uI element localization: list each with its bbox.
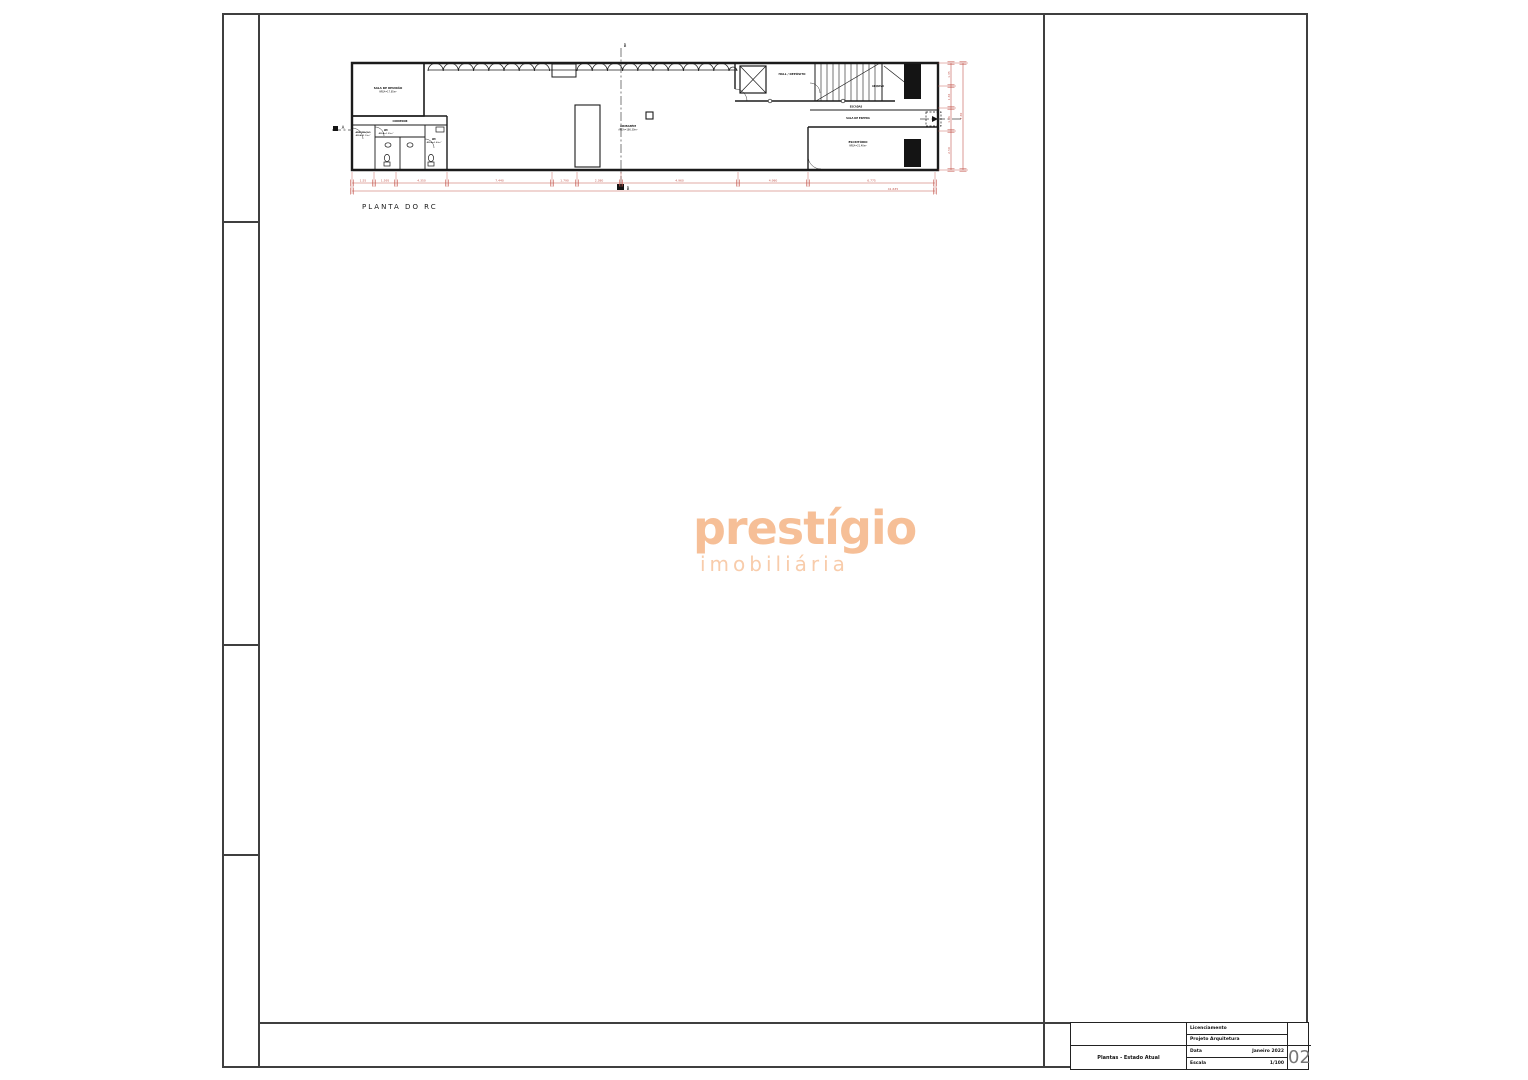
room-label: ÁREA=17.85m² [379, 91, 397, 94]
dim-value: 6.775 [867, 179, 876, 183]
dim-value: 1.36 [947, 116, 951, 123]
room-label: HALL / DEPÓSITO [778, 71, 806, 76]
watermark-brand-name: prestígio [693, 505, 863, 551]
drawing-title: Plantas - Estado Atual [1071, 1046, 1187, 1069]
binding-tick-3 [222, 854, 260, 856]
room-label: ARRUMAÇÃO [355, 131, 370, 134]
sheet-binding-margin-line [258, 13, 260, 1068]
sheet-number: 02 [1287, 1046, 1311, 1069]
room-label: ÁREA=2.10m² [356, 134, 371, 137]
dim-value: 1.36 [947, 94, 951, 101]
sheet-divider-right-panel [1043, 13, 1045, 1068]
watermark-brand-subtitle: imobiliária [700, 554, 863, 574]
dim-value: 4.350 [417, 179, 426, 183]
section-label-b-bottom: B [627, 186, 630, 191]
room-labels: SALA DE REUNIÃO ÁREA=17.85m² CORREDOR AR… [355, 71, 884, 148]
sheet-border-left [222, 13, 224, 1068]
title-block-row-projeto: Projeto Arquitetura [1187, 1035, 1287, 1047]
room-label: WC [432, 138, 436, 141]
dimension-values: 1.55 1.595 4.350 7.440 1.790 2.380 4.960… [360, 71, 963, 191]
floor-plan-svg: B B A SALA DE REUNIÃO ÁREA=17.85m² CORRE… [330, 40, 990, 220]
title-block-empty-corner [1287, 1023, 1311, 1046]
dim-value: 2.50 [947, 147, 951, 154]
binding-tick-2 [222, 644, 260, 646]
binding-tick-1 [222, 221, 260, 223]
sheet-border-right [1306, 13, 1308, 1068]
dim-value: 4.980 [769, 179, 778, 183]
plan-fixtures [384, 143, 434, 166]
room-label: ÁREA=21.40m² [849, 145, 867, 148]
dim-value: 7.440 [495, 179, 504, 183]
dim-total: 41.635 [888, 187, 899, 191]
room-label: SALA DE REUNIÃO [374, 85, 403, 90]
title-block-row-licenciamento: Licenciamento [1187, 1023, 1287, 1035]
escala-label: Escala [1190, 1061, 1206, 1066]
room-label: ÁREA=1.95m² [379, 132, 394, 135]
title-block-row-data: Data Janeiro 2022 [1187, 1046, 1287, 1058]
room-label: ARMAZÉM [620, 123, 636, 128]
dimension-lines [351, 62, 968, 195]
dim-value: 1.35 [947, 71, 951, 78]
room-label: ESCRITÓRIO [848, 139, 868, 144]
sheet-border-top [222, 13, 1308, 15]
room-label: SALA DE ESPERA [846, 116, 870, 120]
data-label: Data [1190, 1049, 1202, 1054]
dim-value: 2.380 [595, 179, 604, 183]
dim-value: 1.55 [360, 179, 367, 183]
plan-caption: PLANTA DO RC [362, 203, 438, 211]
watermark-logo: prestígio imobiliária [693, 505, 863, 574]
room-label: ARQUIVO [872, 85, 884, 88]
room-label: CORREDOR [393, 120, 408, 123]
data-value: Janeiro 2022 [1252, 1049, 1284, 1054]
dim-total: 7.30 [959, 113, 963, 120]
title-block: Plantas - Estado Atual Licenciamento Pro… [1070, 1022, 1309, 1070]
section-label-b-top: B [624, 43, 627, 48]
escala-value: 1/100 [1270, 1061, 1284, 1066]
title-block-row-escala: Escala 1/100 [1187, 1058, 1287, 1070]
dim-value: 1.790 [560, 179, 569, 183]
section-label-a: A [342, 125, 345, 130]
room-label: ÁREA=186.30m² [618, 129, 637, 132]
dim-value: 1.595 [381, 179, 390, 183]
room-label: ESCADAS [850, 106, 863, 109]
room-label: ÁREA=2.40m² [427, 141, 442, 144]
title-block-empty-cell [1071, 1023, 1187, 1046]
dim-value: 4.960 [675, 179, 684, 183]
room-label: WC [384, 129, 388, 132]
